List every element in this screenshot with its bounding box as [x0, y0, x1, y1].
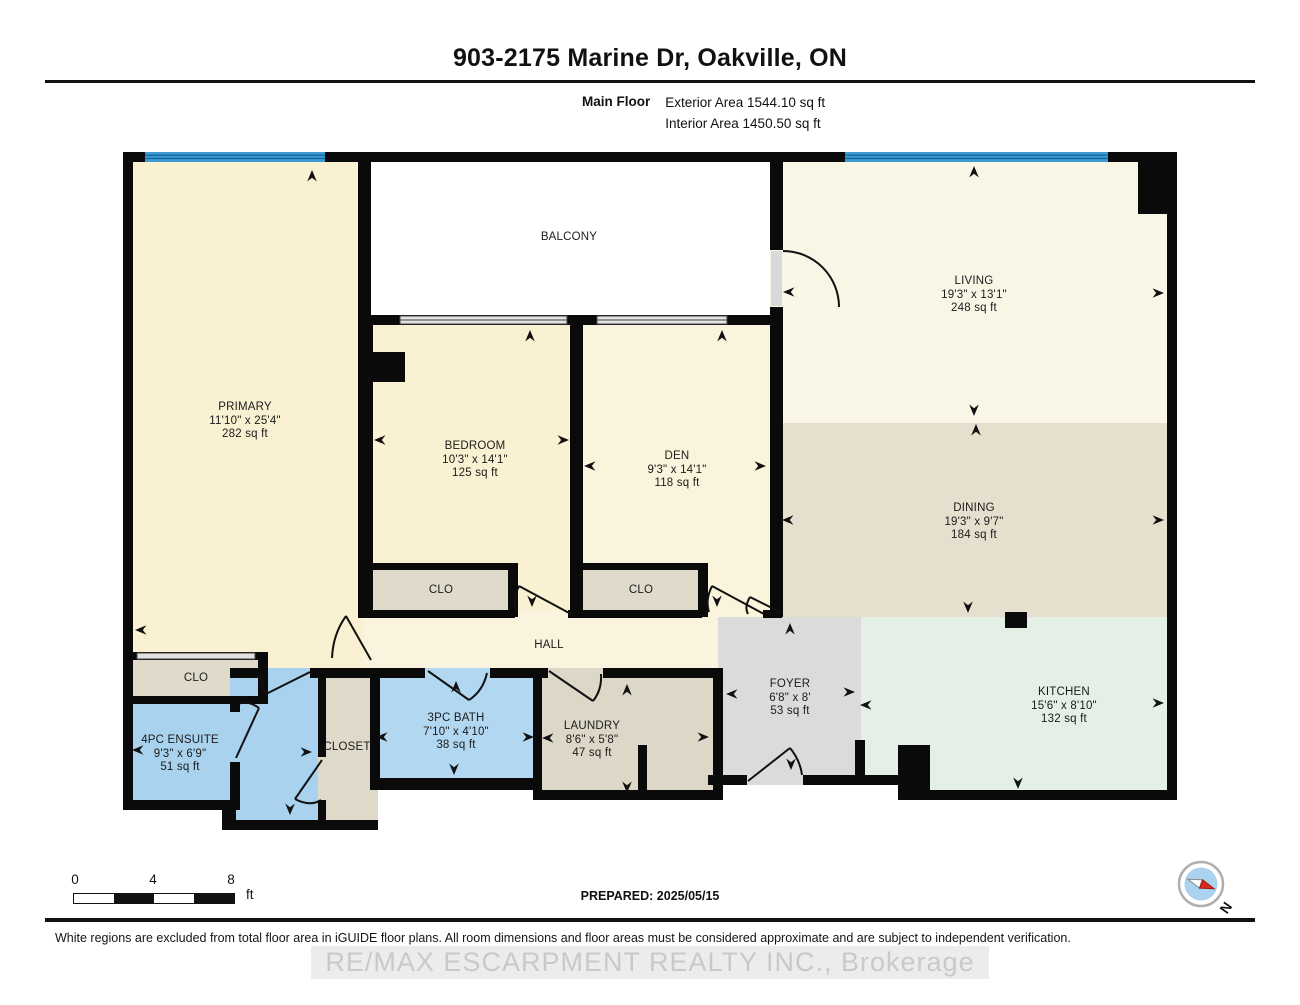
- floorplan: N: [0, 0, 1300, 1005]
- room-label-hall: HALL: [464, 639, 634, 653]
- room-label-primary: PRIMARY 11'10" x 25'4" 282 sq ft: [160, 401, 330, 442]
- balcony-door-panel: [771, 251, 782, 306]
- room-label-den: DEN 9'3" x 14'1" 118 sq ft: [592, 450, 762, 491]
- room-label-clo-primary: CLO: [111, 672, 281, 686]
- living-window: [845, 152, 1108, 162]
- disclaimer-text: White regions are excluded from total fl…: [55, 931, 1071, 945]
- room-label-bedroom: BEDROOM 10'3" x 14'1" 125 sq ft: [390, 440, 560, 481]
- room-label-kitchen: KITCHEN 15'6" x 8'10" 132 sq ft: [979, 686, 1149, 727]
- primary-window: [145, 152, 325, 162]
- room-label-foyer: FOYER 6'8" x 8' 53 sq ft: [705, 678, 875, 719]
- footer-divider: [45, 918, 1255, 922]
- room-label-ensuite: 4PC ENSUITE 9'3" x 6'9" 51 sq ft: [95, 734, 265, 775]
- room-label-laundry: LAUNDRY 8'6" x 5'8" 47 sq ft: [507, 720, 677, 761]
- scale-tick-0: 0: [65, 872, 85, 887]
- den-window: [597, 316, 727, 324]
- watermark-row: RE/MAX ESCARPMENT REALTY INC., Brokerage: [0, 946, 1300, 979]
- bedroom-window: [400, 316, 567, 324]
- scale-tick-4: 4: [143, 872, 163, 887]
- prepared-date: PREPARED: 2025/05/15: [0, 889, 1300, 903]
- room-label-balcony: BALCONY: [484, 231, 654, 245]
- room-label-clo-den: CLO: [556, 584, 726, 598]
- primary-closet-window: [137, 653, 255, 659]
- room-label-living: LIVING 19'3" x 13'1" 248 sq ft: [889, 275, 1059, 316]
- room-label-dining: DINING 19'3" x 9'7" 184 sq ft: [889, 502, 1059, 543]
- brokerage-watermark: RE/MAX ESCARPMENT REALTY INC., Brokerage: [311, 946, 988, 979]
- floorplan-page: 903-2175 Marine Dr, Oakville, ON Main Fl…: [0, 0, 1300, 1005]
- scale-tick-8: 8: [221, 872, 241, 887]
- room-label-clo-bedroom: CLO: [356, 584, 526, 598]
